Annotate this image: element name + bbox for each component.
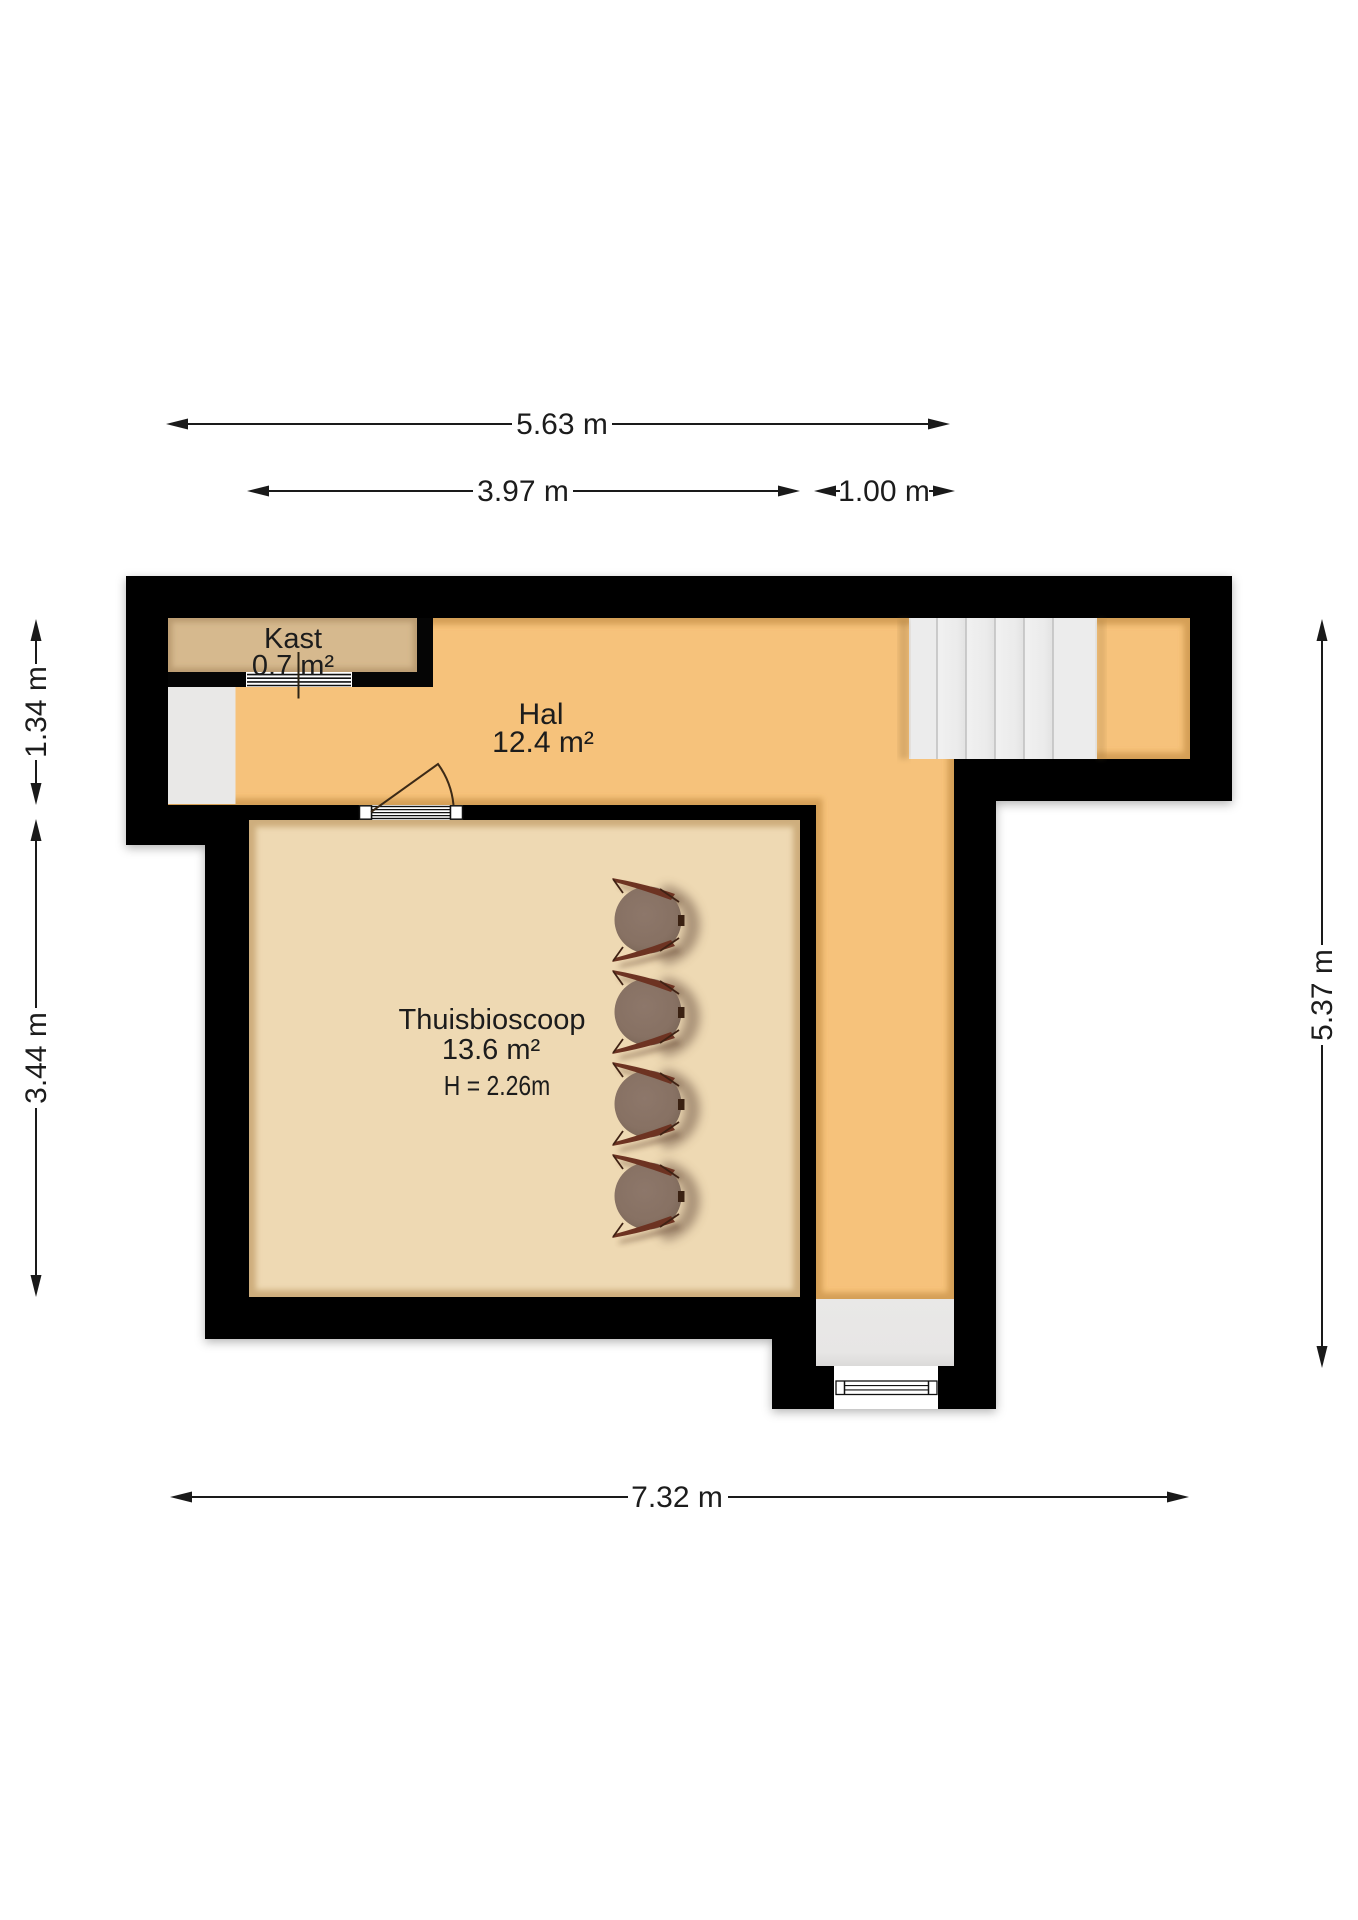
svg-text:1.00 m: 1.00 m <box>838 475 930 508</box>
svg-text:H = 2.26m: H = 2.26m <box>444 1071 551 1102</box>
svg-text:7.32 m: 7.32 m <box>631 1481 723 1514</box>
svg-text:5.63 m: 5.63 m <box>516 408 608 441</box>
svg-text:3.97 m: 3.97 m <box>477 475 569 508</box>
svg-text:1.34 m: 1.34 m <box>20 666 53 758</box>
svg-text:5.37 m: 5.37 m <box>1306 949 1339 1041</box>
svg-text:3.44 m: 3.44 m <box>20 1012 53 1104</box>
svg-text:0.7 m²: 0.7 m² <box>252 650 335 682</box>
svg-text:12.4 m²: 12.4 m² <box>492 726 594 759</box>
svg-text:Thuisbioscoop: Thuisbioscoop <box>399 1004 586 1036</box>
svg-text:13.6 m²: 13.6 m² <box>442 1034 541 1066</box>
